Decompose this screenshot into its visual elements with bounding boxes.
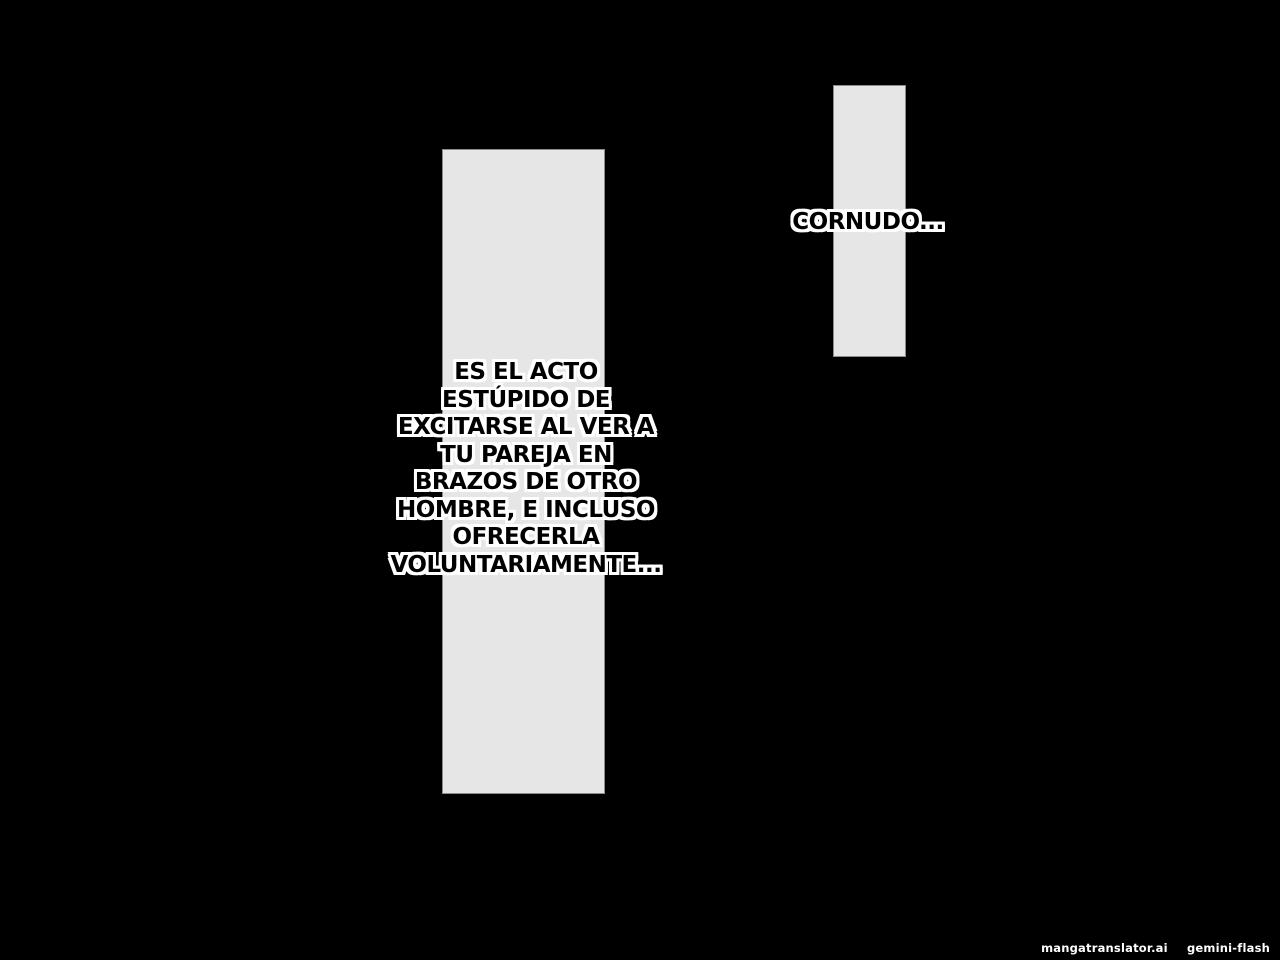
speech-line: ESTÚPIDO DE: [326, 387, 726, 415]
watermark-site: mangatranslator.ai: [1041, 941, 1168, 955]
speech-line: VOLUNTARIAMENTE...: [326, 552, 726, 580]
speech-line: EXCITARSE AL VER A: [326, 414, 726, 442]
cornudo-speech-text: CORNUDO...: [768, 209, 968, 235]
speech-line: BRAZOS DE OTRO: [326, 469, 726, 497]
watermark: mangatranslator.ai gemini-flash: [1041, 941, 1270, 955]
speech-line: ES EL ACTO: [326, 359, 726, 387]
speech-line: OFRECERLA: [326, 524, 726, 552]
main-speech-text: ES EL ACTO ESTÚPIDO DE EXCITARSE AL VER …: [326, 359, 726, 579]
speech-line: HOMBRE, E INCLUSO: [326, 497, 726, 525]
speech-line: TU PAREJA EN: [326, 442, 726, 470]
watermark-model: gemini-flash: [1187, 941, 1270, 955]
manga-page: CORNUDO... ES EL ACTO ESTÚPIDO DE EXCITA…: [0, 0, 1280, 960]
